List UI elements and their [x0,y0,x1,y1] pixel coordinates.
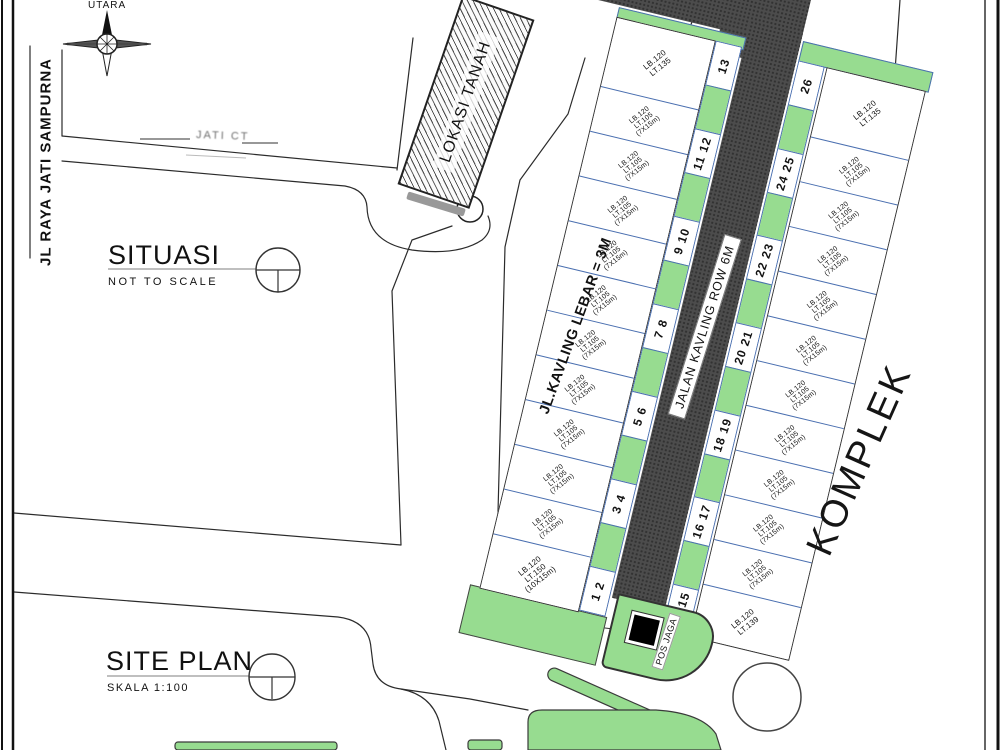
plot-label: LB.120LT.105(7X15m) [761,467,797,501]
green-strip-bottom-left [175,742,337,750]
street-label-faint: JATI CT [196,129,250,143]
plot-label: LB.120LT.105(7X15m) [751,512,787,546]
compass-label: UTARA [88,0,126,11]
road-dash-faint [186,155,246,158]
plot-number: 22 23 [752,241,776,279]
plot-number: 16 17 [689,503,713,541]
lower-road-top-edge [14,513,401,545]
plot-number: 18 19 [710,416,734,454]
plot-number: 1 2 [588,580,608,603]
plot-label: LB.120LT.105(7X15m) [793,333,829,367]
plot-label: LB.120LT.139 [730,607,761,637]
road-fork-edge [401,689,446,750]
plot-label: LB.120LT.135 [642,49,673,79]
compass-hub-spokes [97,34,117,54]
plot-number: 7 8 [651,317,671,340]
plot-label: LB.120LT.105(7X15m) [626,103,662,137]
parcel-west-edge [392,226,452,545]
plot-label: LB.120LT.105(7X15m) [783,377,819,411]
plot-number: 9 10 [671,226,693,256]
plot-number: 24 25 [773,154,797,192]
siteplan-title: SITE PLAN [106,646,253,677]
plot-label: LB.120LT.135 [852,99,883,129]
plot-label: LB.120LT.105(7X15m) [530,506,566,540]
green-strip-bottom-mid [468,740,502,750]
plot-label: LB.120LT.105(7X15m) [815,243,851,277]
compass-east-point [116,40,151,48]
plot-label: LB.120LT.105(7X15m) [605,193,641,227]
green-island-large [528,710,721,750]
situasi-title: SITUASI [108,240,220,271]
situasi-marker-lines [256,270,300,292]
plot-number: 3 4 [609,492,629,515]
plot-number: 20 21 [731,329,755,367]
plot-label: LB.120LT.105(7X15m) [616,148,652,182]
plot-number: 5 6 [630,405,650,428]
siteplan-scale: SKALA 1:100 [107,682,189,694]
compass-rose [55,0,165,90]
plot-label: LB.120LT.150(10X15m) [513,551,558,594]
street-label-jl-raya: JL RAYA JATI SAMPURNA [38,58,55,266]
compass-west-point [63,40,98,48]
plot-label: LB.120LT.105(7X15m) [562,372,598,406]
plot-number: 11 12 [690,135,714,172]
plot-label: LB.120LT.105(7X15m) [804,288,840,322]
situasi-note: NOT TO SCALE [108,276,218,288]
plot-label: LB.120LT.105(7X15m) [826,198,862,232]
plot-number: 26 [797,76,815,95]
plot-number: 13 [715,57,733,76]
plot-label: LB.120LT.105(7X15m) [740,556,776,590]
plot-label: LB.120LT.105(7X15m) [551,416,587,450]
plot-label: LB.120LT.105(7X15m) [772,422,808,456]
siteplan-marker-lines [249,677,295,699]
plot-label: LB.120LT.105(7X15m) [836,154,872,188]
plot-label: LB.120LT.105(7X15m) [540,461,576,495]
lower-road-bottom-edge [14,592,528,710]
